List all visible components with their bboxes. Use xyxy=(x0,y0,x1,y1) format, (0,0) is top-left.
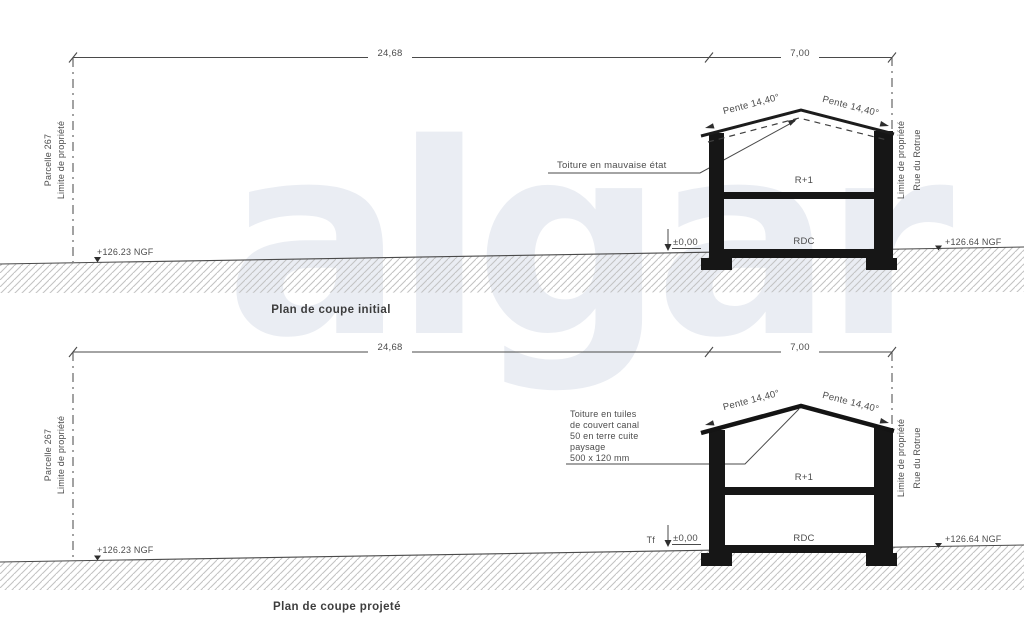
left-wall xyxy=(709,133,724,258)
left-footing xyxy=(701,258,732,270)
level-zero-arrow-icon xyxy=(665,540,672,547)
floor-slab xyxy=(709,192,893,199)
level-zero-arrow-icon xyxy=(665,244,672,251)
ngf-left-label: +126.23 NGF xyxy=(97,247,154,257)
ground-floor-label: RDC xyxy=(793,236,814,247)
property-limit-label-left: Limite de propriété xyxy=(56,121,66,199)
dimension-main-label: 24,68 xyxy=(377,48,402,59)
dimension-main-label: 24,68 xyxy=(377,342,402,353)
tf-label: Tf xyxy=(647,535,656,545)
old-roof-dashed-line xyxy=(708,118,887,142)
roof-note-line: 50 en terre cuite xyxy=(570,431,638,441)
slope-arrow-left-icon xyxy=(705,420,715,425)
floor-slab xyxy=(709,487,893,495)
slope-arrow-right-icon xyxy=(880,121,889,127)
slope-arrow-right-icon xyxy=(880,418,889,424)
slope-right-label: Pente 14,40° xyxy=(821,390,880,415)
roof-note-line: paysage xyxy=(570,442,605,452)
section-initial: 24,68 7,00 Parcelle 267 Limite de propri… xyxy=(0,45,1024,316)
left-footing xyxy=(701,553,732,566)
property-limit-label-right: Limite de propriété xyxy=(896,121,906,199)
roof-note-line: de couvert canal xyxy=(570,420,639,430)
ngf-right-label: +126.64 NGF xyxy=(945,237,1002,247)
ground-slab xyxy=(709,249,893,258)
street-label: Rue du Rotrue xyxy=(912,427,922,488)
architectural-section-sheet: algar 24,68 7,00 Parcelle 267 Limite de xyxy=(0,0,1024,635)
dimension-street-label: 7,00 xyxy=(790,48,810,59)
section-projete: 24,68 7,00 Parcelle 267 Limite de propri… xyxy=(0,339,1024,613)
slope-left-label: Pente 14,40° xyxy=(722,92,781,117)
right-wall xyxy=(874,131,893,258)
slope-right-label: Pente 14,40° xyxy=(821,94,880,119)
level-zero-label: ±0,00 xyxy=(673,533,698,544)
roof-note-line: 500 x 120 mm xyxy=(570,453,629,463)
slope-arrow-left-icon xyxy=(705,123,715,128)
street-label: Rue du Rotrue xyxy=(912,129,922,190)
roof-note-line: Toiture en tuiles xyxy=(570,409,637,419)
parcel-label: Parcelle 267 xyxy=(43,134,53,186)
upper-floor-label: R+1 xyxy=(795,175,813,186)
section-caption: Plan de coupe projeté xyxy=(273,601,401,613)
property-limit-label-left: Limite de propriété xyxy=(56,416,66,494)
ground-floor-label: RDC xyxy=(793,533,814,544)
level-zero-label: ±0,00 xyxy=(673,237,698,248)
ngf-left-marker-icon xyxy=(94,556,101,561)
right-footing xyxy=(866,553,897,566)
ngf-left-marker-icon xyxy=(94,257,101,263)
ngf-left-label: +126.23 NGF xyxy=(97,545,154,555)
roof-note-text: Toiture en mauvaise état xyxy=(557,160,667,171)
right-wall xyxy=(874,428,893,553)
leader-arrowhead-icon xyxy=(788,119,797,126)
left-wall xyxy=(709,430,725,553)
parcel-label: Parcelle 267 xyxy=(43,429,53,481)
section-drawings-svg: 24,68 7,00 Parcelle 267 Limite de propri… xyxy=(0,0,1024,635)
slope-left-label: Pente 14,40° xyxy=(722,388,781,413)
section-caption: Plan de coupe initial xyxy=(271,304,391,316)
right-footing xyxy=(866,258,897,270)
ground-slab xyxy=(709,545,893,553)
ngf-right-label: +126.64 NGF xyxy=(945,534,1002,544)
dimension-street-label: 7,00 xyxy=(790,342,810,353)
property-limit-label-right: Limite de propriété xyxy=(896,419,906,497)
upper-floor-label: R+1 xyxy=(795,472,813,483)
